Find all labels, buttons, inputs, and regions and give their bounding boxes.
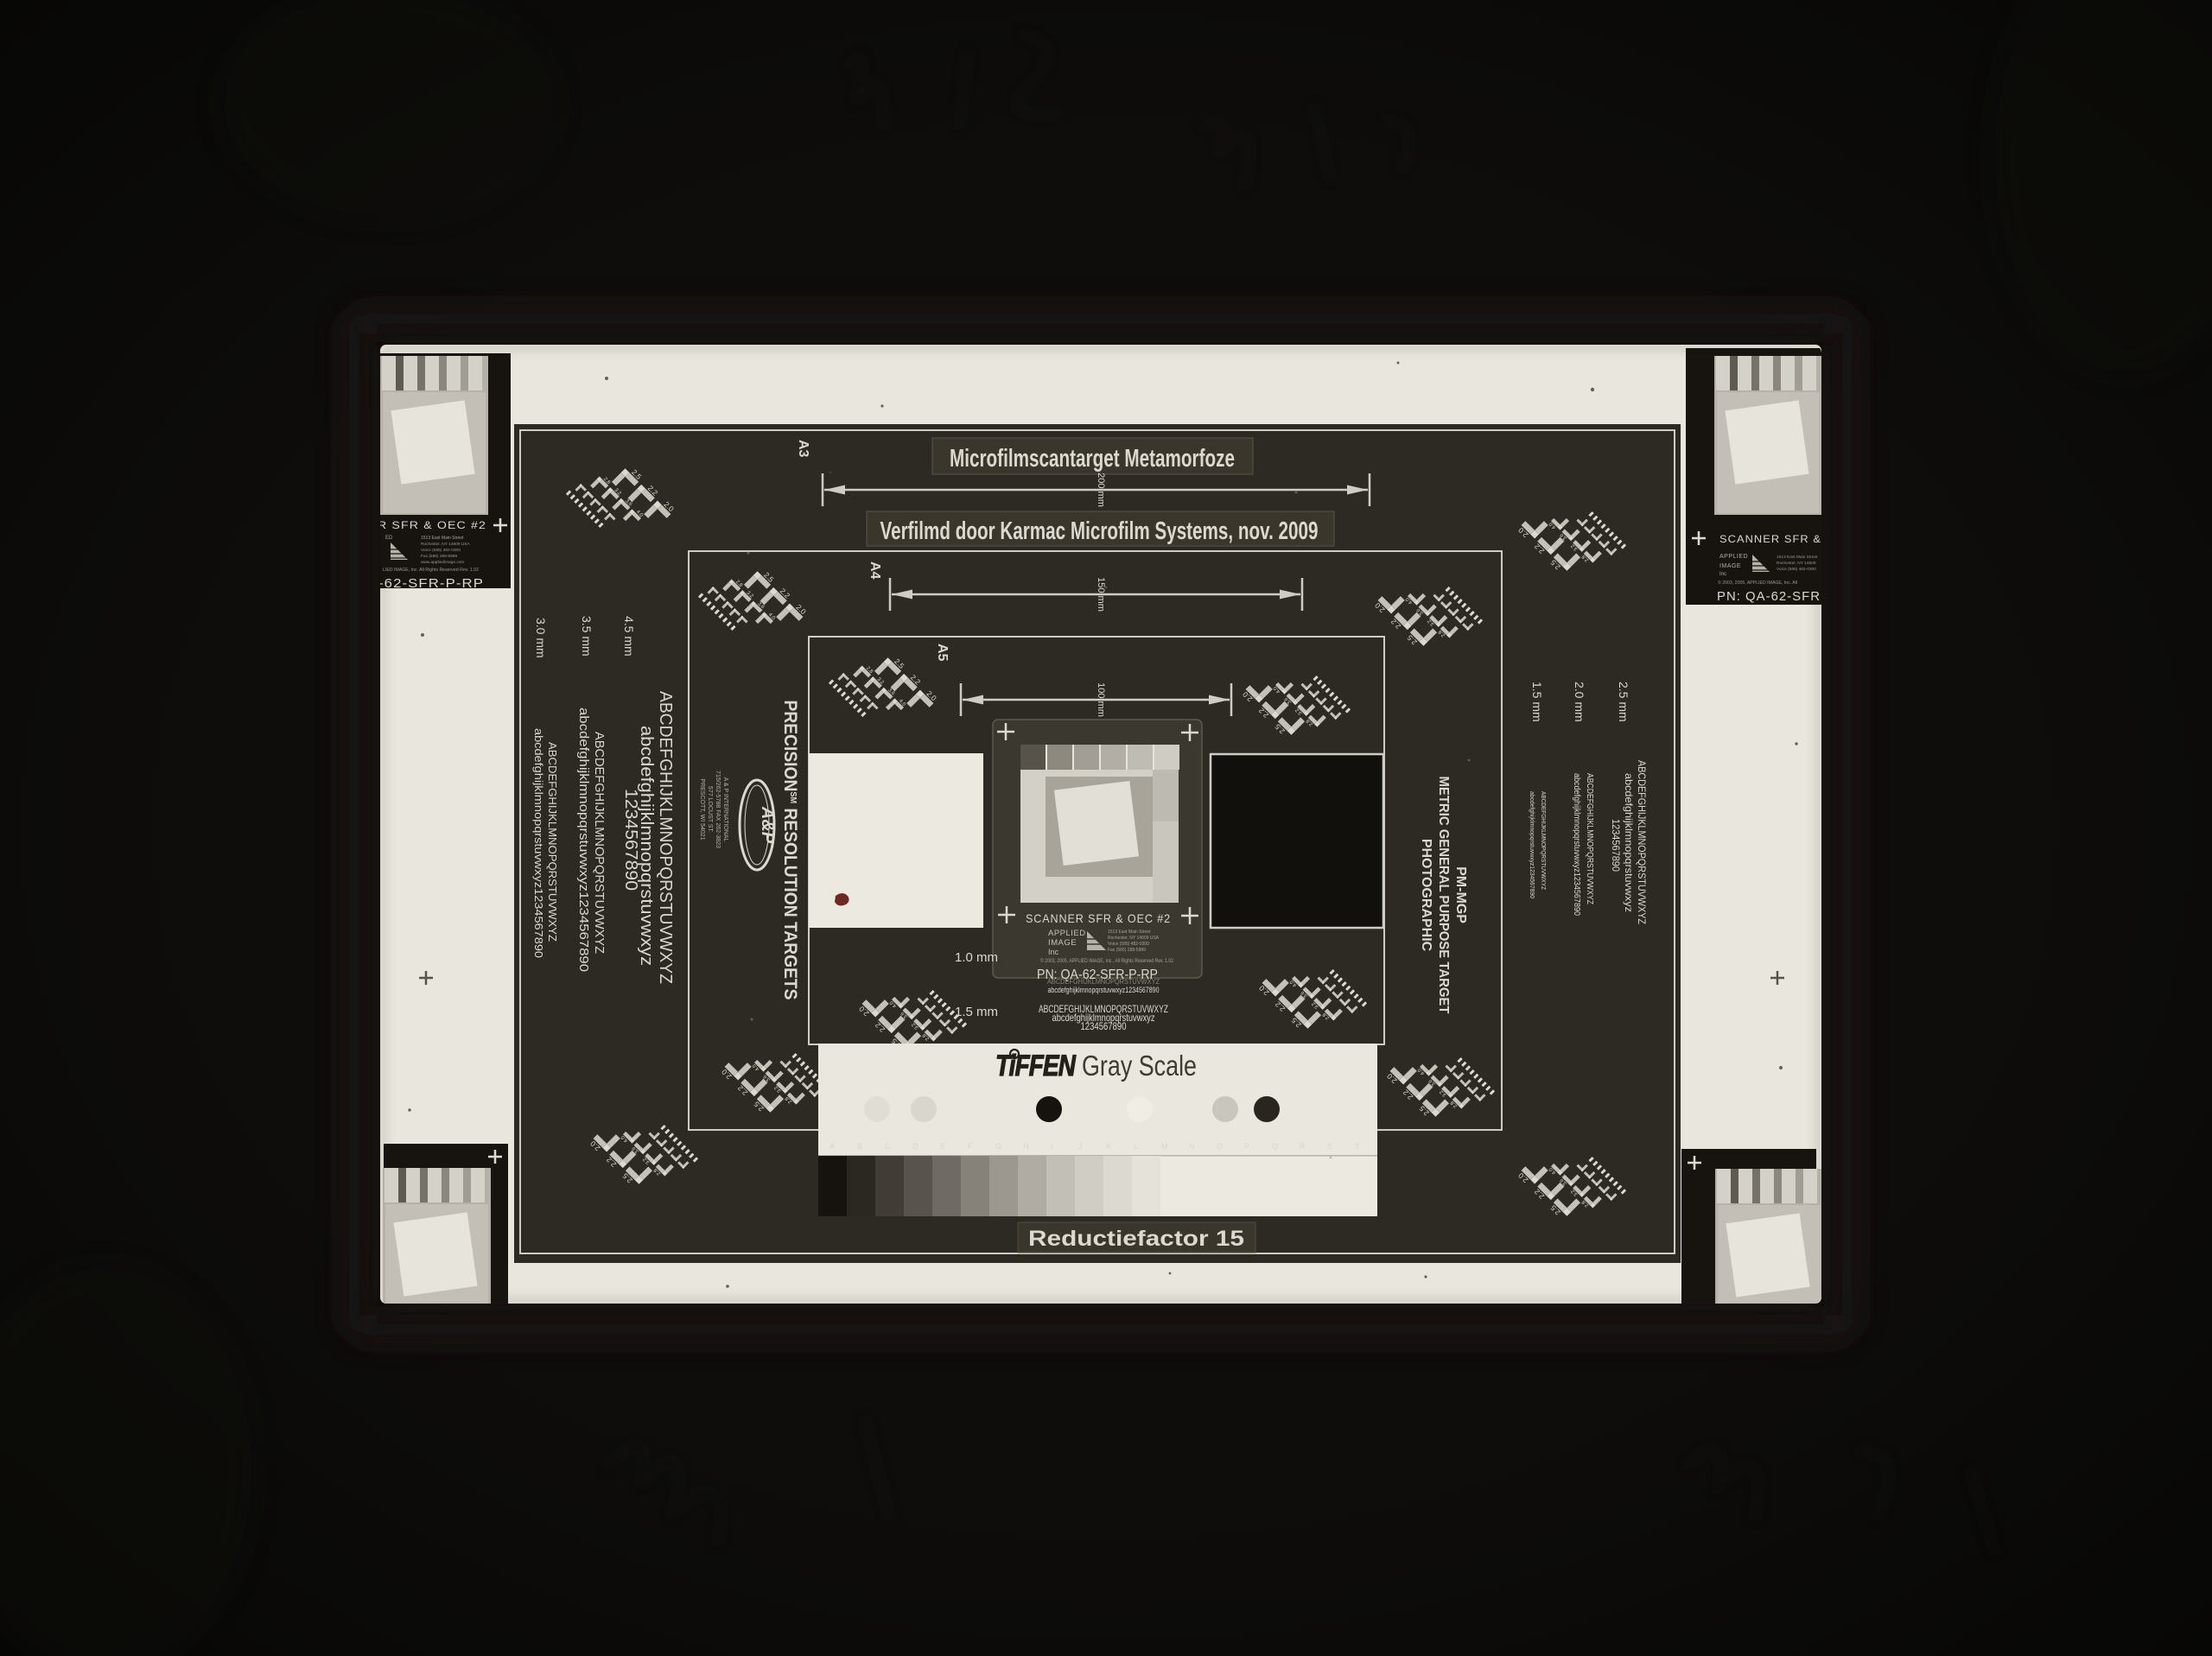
- svg-text:Verfilmd door Karmac Microfilm: Verfilmd door Karmac Microfilm Systems, …: [880, 517, 1319, 545]
- svg-text:1234567890: 1234567890: [1610, 819, 1622, 872]
- svg-text:PM-MGP: PM-MGP: [1453, 866, 1468, 923]
- svg-text:I: I: [1051, 1142, 1053, 1151]
- svg-text:abcdefghijklmnopqrstuvwxyz: abcdefghijklmnopqrstuvwxyz: [1623, 773, 1635, 912]
- svg-text:© 2003, 2005, APPLIED IMAGE, I: © 2003, 2005, APPLIED IMAGE, Inc. All: [1718, 580, 1797, 586]
- svg-text:ABCDEFGHIJKLMNOPQRSTUVWXYZ: ABCDEFGHIJKLMNOPQRSTUVWXYZ: [1540, 791, 1548, 890]
- svg-text:abcdefghijklmnopqrstuvwxyz1234: abcdefghijklmnopqrstuvwxyz1234567890: [1048, 986, 1160, 994]
- svg-text:R SFR & OEC #2: R SFR & OEC #2: [378, 519, 486, 531]
- svg-text:1513 East Main Street: 1513 East Main Street: [1108, 930, 1151, 935]
- svg-text:www.appliedimage.com: www.appliedimage.com: [421, 560, 464, 565]
- svg-text:L: L: [1134, 1142, 1138, 1151]
- svg-text:715/262-5788 FAX 262-3823: 715/262-5788 FAX 262-3823: [715, 771, 721, 848]
- svg-text:E: E: [940, 1142, 945, 1151]
- svg-text:ABCDEFGHIJKLMNOPQRSTUVWXYZ: ABCDEFGHIJKLMNOPQRSTUVWXYZ: [1636, 760, 1648, 924]
- svg-text:A & P INTERNATIONAL: A & P INTERNATIONAL: [722, 777, 728, 842]
- svg-text:Fax (585) 288-5989: Fax (585) 288-5989: [1108, 948, 1146, 953]
- svg-text:PRECISIONSM RESOLUTION TARGETS: PRECISIONSM RESOLUTION TARGETS: [780, 701, 800, 1000]
- svg-text:© 2003, 2005, APPLIED IMAGE, I: © 2003, 2005, APPLIED IMAGE, Inc., All R…: [1040, 958, 1174, 964]
- svg-text:D: D: [912, 1142, 918, 1151]
- svg-text:T: T: [1355, 1142, 1360, 1151]
- svg-text:G: G: [995, 1142, 1001, 1151]
- svg-text:1.0 mm: 1.0 mm: [955, 950, 998, 965]
- svg-text:S: S: [1327, 1142, 1332, 1151]
- svg-text:TiFFEN: TiFFEN: [995, 1050, 1077, 1082]
- svg-text:abcdefghijklmnopqrstuvwxyz1234: abcdefghijklmnopqrstuvwxyz1234567890: [1572, 773, 1581, 916]
- svg-text:H: H: [1023, 1142, 1029, 1151]
- svg-text:J: J: [1078, 1142, 1083, 1151]
- svg-text:R: R: [1300, 1142, 1306, 1151]
- svg-text:F: F: [968, 1142, 973, 1151]
- svg-text:SCANNER SFR &: SCANNER SFR &: [1719, 533, 1821, 545]
- svg-text:ABCDEFGHIJKLMNOPQRSTUVWXYZ: ABCDEFGHIJKLMNOPQRSTUVWXYZ: [592, 732, 607, 954]
- svg-text:ABCDEFGHIJKLMNOPQRSTUVWXYZ: ABCDEFGHIJKLMNOPQRSTUVWXYZ: [1585, 773, 1594, 904]
- svg-text:ABCDEFGHIJKLMNOPQRSTUVWXYZ: ABCDEFGHIJKLMNOPQRSTUVWXYZ: [656, 691, 675, 984]
- svg-text:Q: Q: [1272, 1142, 1278, 1151]
- svg-text:K: K: [1106, 1142, 1111, 1151]
- svg-text:LIED IMAGE, Inc. All Rights Re: LIED IMAGE, Inc. All Rights Reserved Rev…: [383, 568, 479, 573]
- svg-text:IMAGE: IMAGE: [1719, 563, 1741, 569]
- svg-text:2.5 mm: 2.5 mm: [1617, 682, 1630, 722]
- svg-text:A: A: [829, 1142, 835, 1151]
- svg-text:PN: QA-62-SFR: PN: QA-62-SFR: [1717, 589, 1821, 604]
- svg-text:1513 East Main Street: 1513 East Main Street: [1777, 555, 1818, 560]
- svg-text:IMAGE: IMAGE: [1048, 938, 1077, 948]
- svg-text:2.0 mm: 2.0 mm: [1573, 682, 1586, 722]
- svg-text:Rochester, NY 14609 USA: Rochester, NY 14609 USA: [421, 542, 471, 547]
- svg-text:4.5 mm: 4.5 mm: [622, 616, 636, 657]
- svg-text:ABCDEFGHIJKLMNOPQRSTUVWXYZ: ABCDEFGHIJKLMNOPQRSTUVWXYZ: [546, 742, 559, 942]
- svg-text:1.5 mm: 1.5 mm: [1530, 682, 1544, 722]
- svg-text:3.5 mm: 3.5 mm: [580, 616, 594, 657]
- svg-text:METRIC GENERAL PURPOSE TARGET: METRIC GENERAL PURPOSE TARGET: [1436, 777, 1451, 1014]
- svg-text:A5: A5: [935, 644, 950, 662]
- svg-text:1513 East Main Street: 1513 East Main Street: [421, 536, 464, 541]
- svg-text:1234567890: 1234567890: [621, 789, 640, 891]
- svg-text:Inc: Inc: [1048, 948, 1059, 956]
- svg-text:APPLIED: APPLIED: [1719, 554, 1748, 560]
- svg-text:A3: A3: [796, 440, 810, 458]
- svg-text:abcdefghijklmnopqrstuvwxyz1234: abcdefghijklmnopqrstuvwxyz1234567890: [1529, 791, 1536, 898]
- svg-text:Microfilmscantarget Metamorfoz: Microfilmscantarget Metamorfoze: [950, 445, 1235, 473]
- svg-text:100 mm: 100 mm: [1096, 682, 1106, 717]
- svg-text:P: P: [1244, 1142, 1249, 1151]
- svg-text:Inc: Inc: [1719, 572, 1726, 577]
- svg-text:-62-SFR-P-RP: -62-SFR-P-RP: [378, 576, 484, 591]
- svg-text:A&P: A&P: [758, 806, 777, 844]
- svg-text:SCANNER SFR & OEC #2: SCANNER SFR & OEC #2: [1026, 911, 1171, 925]
- svg-text:1234567890: 1234567890: [1081, 1020, 1127, 1032]
- svg-text:Rochester, NY 14609: Rochester, NY 14609: [1777, 561, 1816, 566]
- svg-text:3.0 mm: 3.0 mm: [534, 618, 548, 658]
- svg-text:Gray Scale: Gray Scale: [1082, 1050, 1197, 1082]
- svg-text:ABCDEFGHIJKLMNOPQRSTUVWXYZ: ABCDEFGHIJKLMNOPQRSTUVWXYZ: [1047, 978, 1160, 986]
- svg-text:abcdefghijklmnopqrstuvwxyz1234: abcdefghijklmnopqrstuvwxyz1234567890: [532, 728, 545, 958]
- svg-text:Voice (585) 482-0300: Voice (585) 482-0300: [421, 548, 461, 553]
- svg-text:APPLIED: APPLIED: [1048, 929, 1086, 938]
- svg-text:577 LOCUST ST.: 577 LOCUST ST.: [707, 786, 713, 833]
- svg-text:ED: ED: [385, 536, 393, 541]
- svg-text:Rochester, NY 14609 USA: Rochester, NY 14609 USA: [1108, 936, 1160, 941]
- svg-text:PHOTOGRAPHIC: PHOTOGRAPHIC: [1419, 839, 1433, 952]
- svg-text:C: C: [885, 1142, 891, 1151]
- svg-text:abcdefghijklmnopqrstuvwxyz1234: abcdefghijklmnopqrstuvwxyz1234567890: [576, 707, 591, 972]
- svg-text:PRESCOTT, WI 54021: PRESCOTT, WI 54021: [699, 778, 705, 840]
- svg-text:1.5 mm: 1.5 mm: [955, 1005, 998, 1019]
- svg-text:A4: A4: [868, 562, 882, 580]
- svg-text:200 mm: 200 mm: [1096, 473, 1106, 507]
- svg-text:Voice (585) 482-0300: Voice (585) 482-0300: [1777, 567, 1816, 572]
- svg-text:150 mm: 150 mm: [1096, 577, 1106, 612]
- svg-text:O: O: [1217, 1142, 1223, 1151]
- svg-text:Voice (585) 482-0300: Voice (585) 482-0300: [1108, 942, 1149, 947]
- svg-text:Reductiefactor 15: Reductiefactor 15: [1028, 1227, 1244, 1251]
- svg-text:B: B: [857, 1142, 862, 1151]
- svg-text:Fax (585) 288-5989: Fax (585) 288-5989: [421, 554, 457, 559]
- svg-text:N: N: [1189, 1142, 1195, 1151]
- svg-text:M: M: [1161, 1142, 1168, 1151]
